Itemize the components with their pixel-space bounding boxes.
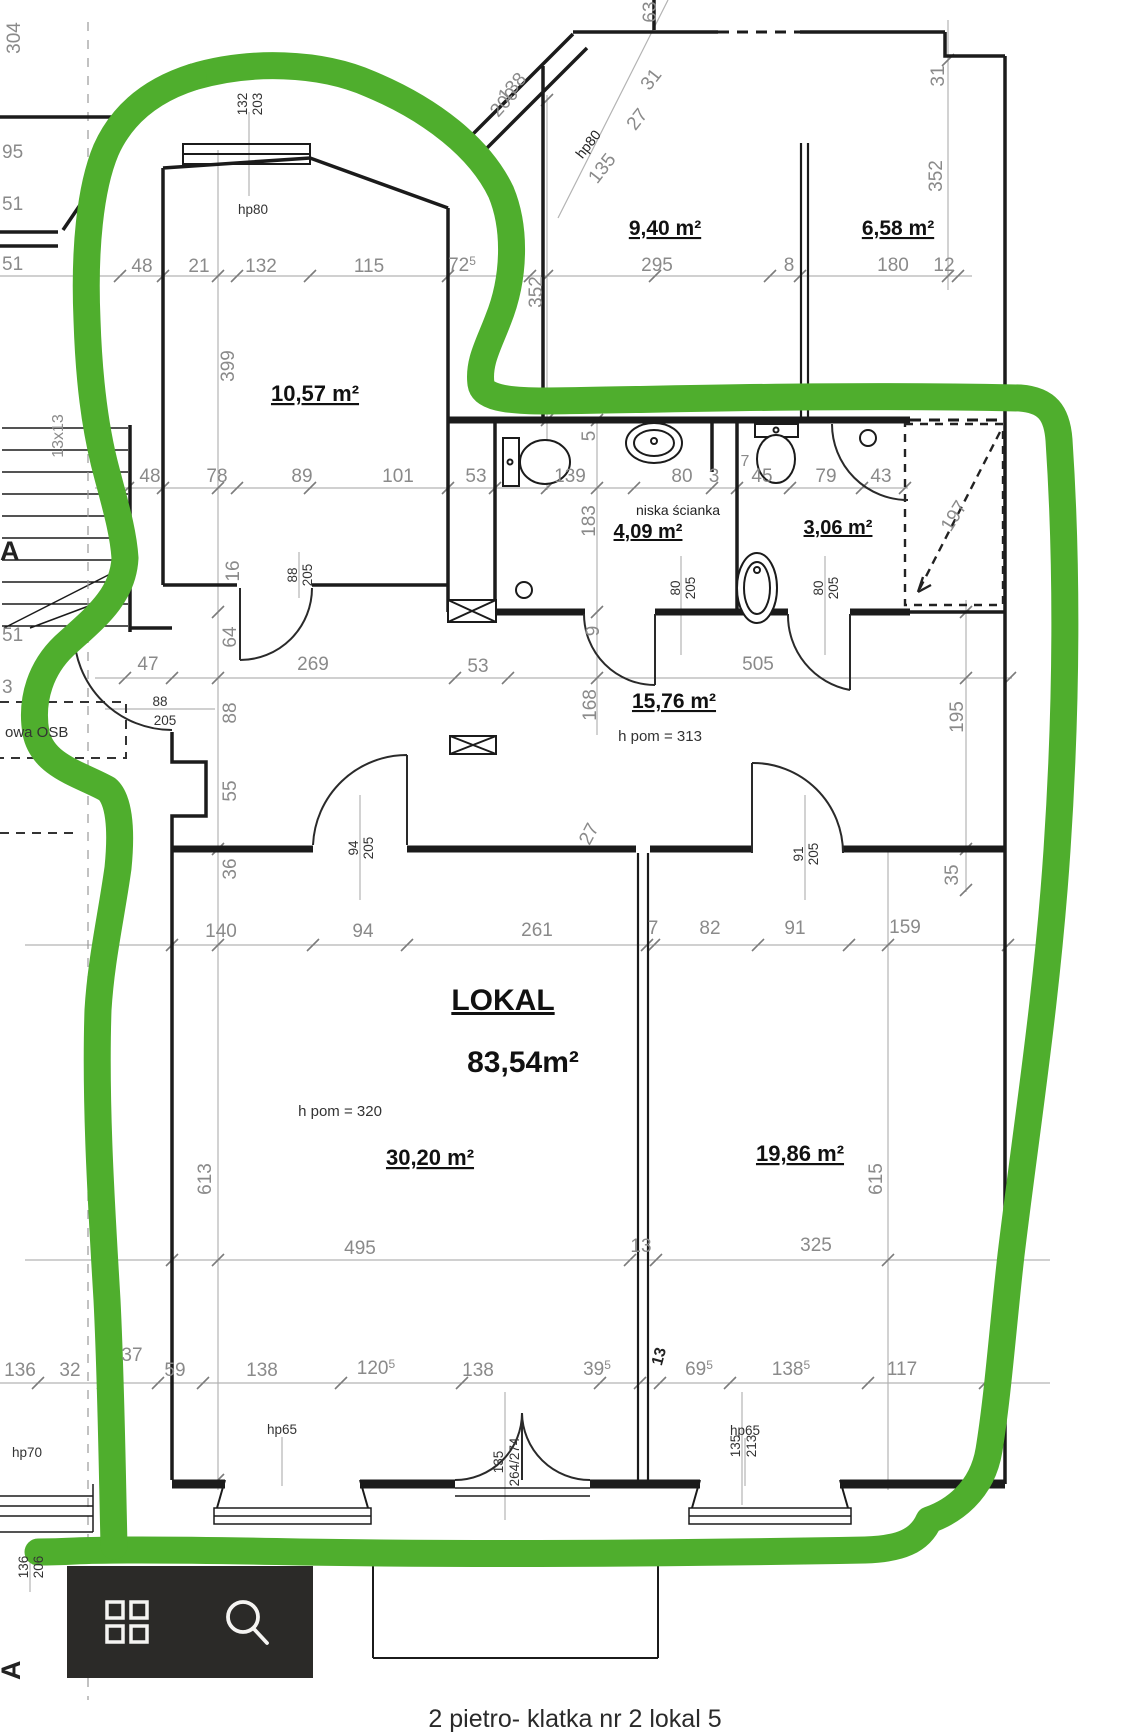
room-area-label: 4,09 m² bbox=[614, 521, 683, 543]
drain-icon bbox=[516, 582, 532, 598]
dim-label: 101 bbox=[382, 466, 414, 487]
opening-label: 205 bbox=[361, 837, 376, 860]
dim-label: 132 bbox=[245, 256, 277, 277]
dim-label: 79 bbox=[815, 466, 836, 487]
opening-label: hp65 bbox=[730, 1423, 760, 1438]
room-area-label: 6,58 m² bbox=[862, 217, 934, 240]
stair-count-label: 13x13 bbox=[50, 414, 67, 458]
opening-label: 205 bbox=[806, 843, 821, 866]
dim-label: 3 bbox=[709, 466, 720, 487]
dim-label: 180 bbox=[877, 255, 909, 276]
dim-label: 82 bbox=[699, 918, 720, 939]
opening-label: 203 bbox=[250, 93, 265, 116]
dim-label: 53 bbox=[465, 466, 486, 487]
opening-label: 264/274 bbox=[507, 1437, 522, 1486]
dim-label: 159 bbox=[889, 917, 921, 938]
opening-label: 205 bbox=[683, 577, 698, 600]
dim-label: 183 bbox=[579, 505, 600, 537]
opening-label: hp70 bbox=[12, 1445, 42, 1460]
dim-label: 47 bbox=[137, 654, 158, 675]
dim-label: 117 bbox=[887, 1359, 917, 1380]
dim-label: 51 bbox=[2, 254, 23, 275]
osb-note: owa OSB bbox=[5, 724, 68, 741]
dim-label: 43 bbox=[870, 466, 891, 487]
dim-label: 35 bbox=[942, 864, 963, 885]
dim-label: 36 bbox=[220, 858, 241, 879]
floorplan-canvas: 48 21 132 115 725 295 8 180 12 48 78 89 … bbox=[0, 0, 1125, 1734]
dim-label: 138 bbox=[462, 1360, 494, 1381]
dim-label: 89 bbox=[291, 466, 312, 487]
dim-label: 16 bbox=[223, 560, 244, 581]
dim-label: 399 bbox=[218, 350, 239, 382]
dim-label: 31 bbox=[928, 65, 949, 86]
opening-label: 135 bbox=[491, 1451, 506, 1474]
dim-label: 5 bbox=[579, 431, 600, 442]
dim-label: 325 bbox=[800, 1235, 832, 1256]
drain2-icon bbox=[860, 430, 876, 446]
dim-label: 59 bbox=[164, 1360, 185, 1381]
dim-label: 37 bbox=[121, 1345, 142, 1366]
dim-label: 352 bbox=[526, 276, 547, 308]
opening-label: 132 bbox=[235, 93, 250, 116]
room-area-label: 3,06 m² bbox=[804, 517, 873, 539]
dim-label: 261 bbox=[521, 920, 553, 941]
niska-scianka-note: niska ścianka bbox=[636, 502, 720, 518]
room-area-label: 30,20 m² bbox=[386, 1145, 474, 1170]
lokal-title: LOKAL bbox=[451, 984, 554, 1017]
dim-label: 352 bbox=[926, 160, 947, 192]
toolbar-background bbox=[67, 1566, 313, 1678]
dim-label: 48 bbox=[139, 466, 160, 487]
dim-label: 91 bbox=[784, 918, 805, 939]
dim-label: 613 bbox=[195, 1163, 216, 1195]
dim-label: 295 bbox=[641, 255, 673, 276]
dim-label: 615 bbox=[866, 1163, 887, 1195]
section-letter: A bbox=[0, 536, 20, 566]
room-area-label: 10,57 m² bbox=[271, 381, 359, 406]
section-letter: A bbox=[0, 1661, 26, 1681]
opening-label: hp65 bbox=[267, 1422, 297, 1437]
dim-label: 21 bbox=[188, 256, 209, 277]
dim-label: 32 bbox=[59, 1360, 80, 1381]
opening-label: 205 bbox=[826, 577, 841, 600]
room-area-label: 19,86 m² bbox=[756, 1141, 844, 1166]
dim-label: 269 bbox=[297, 654, 329, 675]
dim-label: 3 bbox=[2, 677, 13, 698]
lokal-area-label: 83,54m² bbox=[467, 1046, 579, 1079]
dim-label: 8 bbox=[784, 255, 795, 276]
dim-label: 495 bbox=[344, 1238, 376, 1259]
dim-label: 88 bbox=[220, 702, 241, 723]
dim-label: 51 bbox=[2, 194, 23, 215]
dim-label: 45 bbox=[751, 466, 772, 487]
drawing-caption: 2 pietro- klatka nr 2 lokal 5 bbox=[428, 1705, 721, 1733]
opening-label: 136 bbox=[16, 1556, 31, 1579]
dim-label: 136 bbox=[4, 1360, 36, 1381]
dim-label: 80 bbox=[671, 466, 692, 487]
opening-label: 80 bbox=[668, 580, 683, 595]
opening-label: 80 bbox=[811, 580, 826, 595]
dim-label: 55 bbox=[220, 780, 241, 801]
dim-label: 63 bbox=[640, 1, 661, 22]
opening-label: 205 bbox=[300, 564, 315, 587]
dim-label: 64 bbox=[220, 626, 241, 648]
dim-label: 48 bbox=[131, 256, 152, 277]
opening-label: 88 bbox=[285, 567, 300, 582]
opening-label: hp80 bbox=[238, 202, 268, 217]
dim-label: 13 bbox=[630, 1236, 651, 1257]
dim-label: 95 bbox=[2, 142, 23, 163]
opening-label: 94 bbox=[346, 840, 361, 856]
bottom-toolbar[interactable] bbox=[67, 1566, 313, 1678]
dim-label: 168 bbox=[580, 689, 601, 721]
floorplan-page: 48 21 132 115 725 295 8 180 12 48 78 89 … bbox=[0, 0, 1125, 1734]
opening-label: 88 bbox=[152, 694, 167, 709]
dim-label: 195 bbox=[947, 701, 968, 733]
opening-label: 135 bbox=[728, 1435, 743, 1458]
dim-label: 139 bbox=[554, 466, 586, 487]
dim-label: 78 bbox=[206, 466, 227, 487]
opening-label: 205 bbox=[154, 713, 177, 728]
dim-label: 115 bbox=[354, 256, 384, 277]
opening-label: 206 bbox=[31, 1556, 46, 1579]
dim-label: 7 bbox=[648, 918, 659, 939]
height-note: h pom = 320 bbox=[298, 1103, 382, 1120]
dim-label: 53 bbox=[467, 656, 488, 677]
dim-label: 12 bbox=[933, 255, 954, 276]
dim-label: 304 bbox=[4, 22, 25, 54]
dim-label: 7 bbox=[741, 453, 750, 470]
dim-label: 505 bbox=[742, 654, 774, 675]
room-area-label: 9,40 m² bbox=[629, 217, 701, 240]
dim-label: 140 bbox=[205, 921, 237, 942]
dim-label: 51 bbox=[2, 625, 23, 646]
dim-label: 138 bbox=[246, 1360, 278, 1381]
opening-label: 91 bbox=[791, 846, 806, 861]
room-area-label: 15,76 m² bbox=[632, 690, 716, 713]
height-note: h pom = 313 bbox=[618, 728, 702, 745]
opening-label: 213 bbox=[744, 1435, 759, 1458]
dim-label: 9 bbox=[583, 626, 604, 637]
dim-label: 94 bbox=[352, 921, 374, 942]
